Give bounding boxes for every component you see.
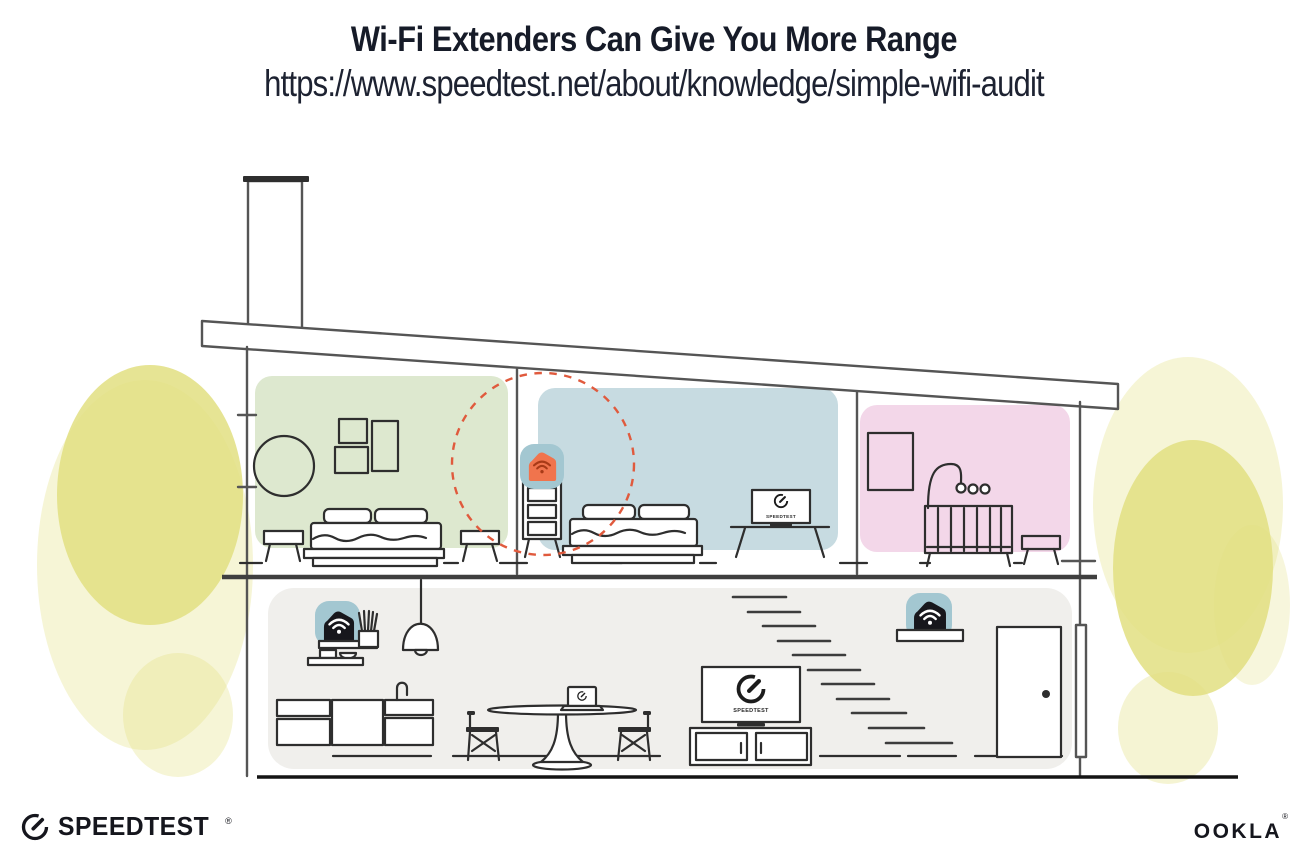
foliage-left (37, 365, 253, 777)
ookla-logo: OOKLA® (1194, 820, 1288, 844)
tv-screen-label: SPEEDTEST (766, 514, 796, 519)
wall-pipe (1076, 625, 1086, 757)
bed-blue (563, 505, 702, 563)
speedtest-gauge-icon (20, 812, 50, 842)
front-door (997, 627, 1061, 757)
speedtest-wordmark: SPEEDTEST (58, 811, 209, 842)
media-console (690, 728, 811, 765)
nursery-stool (1022, 536, 1060, 564)
speedtest-logo: SPEEDTEST® (20, 811, 232, 842)
registered-mark: ® (225, 816, 232, 826)
bedroom-wifi-extender (520, 444, 564, 489)
living-tv: SPEEDTEST (702, 667, 800, 727)
ookla-wordmark: OOKLA (1194, 820, 1282, 843)
foliage-right (1093, 357, 1290, 784)
chimney (243, 176, 309, 329)
tv-screen-label: SPEEDTEST (733, 708, 769, 714)
registered-mark: ® (1282, 812, 1288, 821)
door-knob (1042, 690, 1050, 698)
laptop (561, 687, 603, 710)
bedroom-tv: SPEEDTEST (752, 490, 810, 527)
house-illustration: SPEEDTEST (0, 0, 1308, 861)
bed-green (304, 509, 444, 566)
